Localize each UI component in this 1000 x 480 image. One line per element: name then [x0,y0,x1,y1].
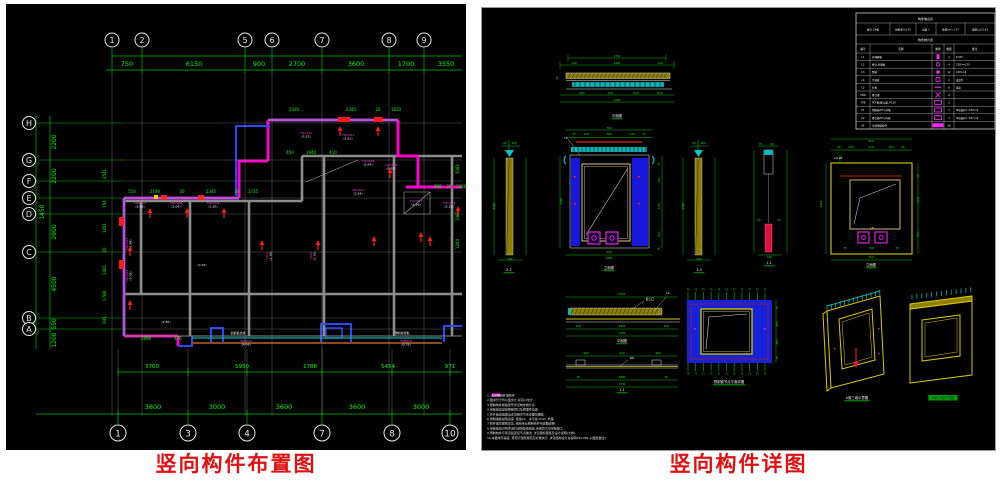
detail-section-1-1 [754,146,787,255]
svg-text:面积(㎡) 5.61: 面积(㎡) 5.61 [972,28,988,32]
svg-text:2838: 2838 [456,184,466,189]
svg-text:预制率(%) 25: 预制率(%) 25 [895,28,911,32]
svg-text:165: 165 [889,145,894,149]
svg-text:1450: 1450 [39,204,46,219]
svg-text:2898: 2898 [141,336,152,341]
svg-text:450: 450 [286,150,294,155]
svg-text:900: 900 [253,60,265,68]
svg-text:H: H [26,119,32,128]
svg-text:层数 1: 层数 1 [922,28,930,32]
svg-text:F1: F1 [861,108,864,112]
svg-text:140: 140 [572,61,577,65]
svg-text:510: 510 [128,189,136,194]
svg-text:200: 200 [701,141,706,145]
detail-section-3-3 [683,140,715,260]
svg-text:L4: L4 [862,78,865,82]
svg-text:2340: 2340 [346,107,357,112]
svg-text:210: 210 [869,145,874,149]
svg-text:(4.94): (4.94) [241,343,250,347]
svg-text:8: 8 [386,36,391,45]
svg-text:4: 4 [948,63,950,67]
svg-text:(1.81): (1.81) [343,137,352,141]
svg-text:360: 360 [607,132,612,136]
svg-text:6: 6 [948,85,950,89]
svg-text:L5: L5 [564,136,568,140]
svg-text:编号: 编号 [860,47,866,51]
svg-text:构件统计表: 构件统计表 [918,37,933,42]
svg-text:820: 820 [657,231,661,236]
svg-text:L3: L3 [862,70,865,74]
svg-text:75: 75 [756,289,759,292]
svg-text:900: 900 [584,351,589,355]
svg-text:75: 75 [843,246,847,250]
svg-text:2: 2 [948,78,950,82]
svg-text:6.预制墙板拼缝宽度, 竖缝20、水平缝-0mm 处理.: 6.预制墙板拼缝宽度, 竖缝20、水平缝-0mm 处理. [487,416,554,421]
svg-text:构件信息表: 构件信息表 [918,16,933,21]
svg-text:740: 740 [869,246,874,250]
svg-text:450: 450 [775,321,779,326]
svg-text:3550: 3550 [438,60,455,68]
svg-text:75: 75 [710,373,713,376]
svg-text:820: 820 [916,231,920,236]
svg-text:3.预制构件规格型号详见构件统计表.: 3.预制构件规格型号详见构件统计表. [487,402,536,407]
svg-text:2541: 2541 [102,168,107,179]
svg-text:20: 20 [102,247,107,253]
svg-text:85: 85 [901,145,905,149]
svg-text:75: 75 [572,132,576,136]
svg-text:L5: L5 [862,85,865,89]
svg-text:560: 560 [657,177,661,182]
svg-text:560: 560 [775,339,779,344]
svg-text:3000: 3000 [209,403,226,411]
right-drawing-title: 竖向构件详图 [481,449,996,479]
svg-text:(1.98): (1.98) [129,239,133,248]
svg-text:名称: 名称 [898,47,904,51]
svg-text:2580: 2580 [619,375,626,379]
svg-text:预制拉缝板: 预制拉缝板 [394,330,409,335]
svg-text:(0.79): (0.79) [401,343,410,347]
svg-text:2.图中尺寸均以毫米计,标高以米计.: 2.图中尺寸均以毫米计,标高以米计. [487,397,534,402]
svg-text:900: 900 [656,351,661,355]
svg-text:1200: 1200 [51,332,58,347]
svg-text:90: 90 [555,76,559,80]
svg-text:1451: 1451 [102,222,107,233]
svg-text:910: 910 [869,139,874,143]
svg-text:(1.49): (1.49) [135,205,144,209]
general-notes: 1. 表示预制外墙构件.2.图中尺寸均以毫米计,标高以米计.3.预制构件规格型号… [487,393,607,440]
svg-text:75: 75 [576,375,580,379]
svg-text:6150: 6150 [186,60,203,68]
svg-text:85: 85 [837,145,841,149]
svg-text:2730: 2730 [619,292,626,296]
svg-text:G: G [26,156,32,165]
svg-text:75: 75 [775,306,779,310]
svg-text:1-1: 1-1 [766,261,772,265]
svg-text:单块面积= 4.02 m2: 单块面积= 4.02 m2 [956,108,979,112]
svg-text:75: 75 [710,289,713,292]
svg-text:(0.54): (0.54) [363,163,372,167]
svg-text:910: 910 [869,255,874,259]
svg-text:3: 3 [185,430,191,440]
svg-text:410: 410 [329,150,337,155]
svg-text:b=63: b=63 [956,56,963,59]
svg-text:10.本图未尽事宜, 按现行国家规范及标准执行, 详见结: 10.本图未尽事宜, 按现行国家规范及标准执行, 详见结构设计总说明15G365… [487,435,607,440]
svg-text:75: 75 [748,373,751,376]
svg-text:2730: 2730 [619,382,626,386]
svg-text:200: 200 [512,141,517,145]
svg-text:1060: 1060 [606,256,613,260]
svg-text:A: A [26,325,32,334]
svg-text:75: 75 [733,289,736,292]
svg-text:YTB: YTB [861,101,866,105]
svg-text:3600: 3600 [276,403,293,411]
svg-text:C30 L=6: C30 L=6 [956,71,967,74]
svg-text:75: 75 [657,247,661,251]
svg-text:叠合,外墙板: 叠合,外墙板 [872,63,886,67]
svg-text:平面图: 平面图 [612,113,623,118]
svg-text:1-1: 1-1 [619,388,625,392]
svg-text:5: 5 [242,36,247,45]
svg-text:1240: 1240 [657,202,661,209]
svg-text:75: 75 [764,289,767,292]
svg-text:20: 20 [234,189,240,194]
svg-text:A窗三维示意图: A窗三维示意图 [846,395,869,400]
svg-text:E: E [26,194,31,203]
svg-text:75: 75 [741,289,744,292]
svg-text:8.吊装前应对构件进行进场检查验收,合格后方可吊装施工.: 8.吊装前应对构件进行进场检查验收,合格后方可吊装施工. [487,425,564,430]
svg-text:140: 140 [630,132,635,136]
svg-text:9.预制构件与现浇段连接节点做法, 详见国标图集及设计说明: 9.预制构件与现浇段连接节点做法, 详见国标图集及设计说明(大样). [487,430,576,435]
svg-text:90: 90 [770,142,774,146]
svg-text:754: 754 [102,200,107,208]
svg-text:3600: 3600 [349,403,366,411]
svg-text:750: 750 [121,60,133,68]
svg-text:8: 8 [948,93,950,97]
svg-text:(1.30): (1.30) [208,205,217,209]
svg-text:75: 75 [748,289,751,292]
svg-text:1940: 1940 [306,150,317,155]
detail-sheet-canvas: 构件信息表楼号 1#楼预制率(%) 25层数 1体积(m³) 2.37面积(㎡)… [481,7,996,451]
svg-text:1700: 1700 [398,60,415,68]
svg-text:2: 2 [139,36,144,45]
svg-text:1: 1 [948,116,950,120]
svg-text:4.吊装前应复核预留洞口及预埋件位置.: 4.吊装前应复核预留洞口及预埋件位置. [487,407,539,412]
svg-text:3700: 3700 [145,364,159,370]
detail-plan-joint [566,297,680,336]
svg-text:2430: 2430 [289,107,300,112]
svg-text:2-2: 2-2 [506,268,512,272]
svg-text:2190: 2190 [150,189,161,194]
svg-text:941: 941 [102,316,107,324]
svg-text:PCF板/叠合梁L=120: PCF板/叠合梁L=120 [872,101,896,105]
svg-text:3000: 3000 [413,403,430,411]
detail-sheet-drawing: 构件信息表楼号 1#楼预制率(%) 25层数 1体积(m³) 2.37面积(㎡)… [482,8,995,450]
svg-text:930: 930 [620,351,625,355]
svg-text:140: 140 [584,132,589,136]
svg-text:971: 971 [445,364,456,370]
svg-text:75: 75 [764,373,767,376]
svg-text:飘窗: 飘窗 [872,70,878,74]
svg-text:2730: 2730 [619,331,626,335]
svg-text:1240: 1240 [916,196,920,203]
svg-text:2450: 2450 [619,324,626,328]
svg-text:4500: 4500 [51,276,58,291]
svg-text:26: 26 [947,123,951,127]
svg-text:75: 75 [725,289,728,292]
svg-text:8: 8 [389,430,395,440]
svg-text:75: 75 [657,162,661,166]
svg-text:窗上口: 窗上口 [646,297,655,301]
svg-text:470: 470 [174,336,182,341]
svg-text:1: 1 [115,430,121,440]
svg-text:2980: 2980 [559,197,563,204]
svg-text:75: 75 [702,373,705,376]
svg-text:F2: F2 [861,116,864,120]
generated-left: 125678975061509002700360017003550HGFEDCB… [23,33,467,441]
svg-text:75: 75 [694,373,697,376]
svg-text:75: 75 [717,289,720,292]
svg-text:165: 165 [849,145,854,149]
svg-text:D8: D8 [630,356,634,360]
svg-text:(1.30): (1.30) [313,251,317,260]
svg-text:75: 75 [702,289,705,292]
svg-text:988: 988 [434,184,442,189]
concrete-walls [124,156,462,336]
svg-text:外墙模板: 外墙模板 [872,55,883,59]
svg-text:60: 60 [692,141,696,145]
svg-text:体积(m³) 2.37: 体积(m³) 2.37 [942,28,959,32]
svg-text:(2.86): (2.86) [161,320,170,324]
svg-text:C: C [26,248,32,257]
svg-text:L5: L5 [870,226,874,230]
svg-text:3600: 3600 [145,403,162,411]
svg-text:75: 75 [725,373,728,376]
svg-text:7: 7 [319,36,324,45]
svg-text:75: 75 [717,373,720,376]
svg-text:740: 740 [608,91,613,95]
svg-text:75: 75 [895,246,899,250]
layout-plan-drawing: 125678975061509002700360017003550HGFEDCB… [6,4,466,450]
svg-text:60: 60 [503,141,507,145]
svg-text:单块面积= 3.07 m2: 单块面积= 3.07 m2 [956,116,979,120]
svg-text:1620: 1620 [391,107,402,112]
svg-text:2200: 2200 [51,134,58,149]
svg-text:75: 75 [741,373,744,376]
detail-elevation-blue [560,130,662,255]
detail-axon-window-a [823,291,884,391]
detail-axon-window-b [910,296,972,383]
svg-text:140: 140 [576,324,581,328]
svg-text:760: 760 [607,126,612,130]
svg-text:(2.54): (2.54) [353,192,362,196]
svg-text:1. 表示预制外墙构件.: 1. 表示预制外墙构件. [487,393,516,398]
svg-text:L2: L2 [862,63,865,67]
svg-text:140: 140 [767,255,772,259]
svg-text:L1: L1 [862,55,865,59]
svg-text:3600: 3600 [348,60,365,68]
svg-text:20: 20 [179,189,185,194]
svg-text:平面图: 平面图 [617,338,628,343]
svg-text:940: 940 [607,250,612,254]
svg-text:20: 20 [375,107,381,112]
svg-text:2: 2 [948,55,950,59]
svg-text:9: 9 [421,36,426,45]
svg-text:75: 75 [642,132,646,136]
svg-text:图例: 图例 [935,47,941,51]
svg-text:2900: 2900 [51,224,58,239]
svg-text:1788: 1788 [102,290,107,301]
left-drawing-title: 竖向构件布置图 [6,449,466,479]
svg-text:(0.92): (0.92) [386,167,395,171]
svg-text:预制板(PC),外墙: 预制板(PC),外墙 [872,108,891,112]
svg-text:75: 75 [733,373,736,376]
svg-text:B: B [26,314,32,323]
svg-text:叠合墙: 叠合墙 [872,93,880,97]
svg-text:75: 75 [756,373,759,376]
svg-text:立面图: 立面图 [604,265,615,270]
svg-text:成品: 成品 [956,85,961,89]
svg-text:75: 75 [758,142,762,146]
svg-text:(3.37): (3.37) [301,135,310,139]
svg-text:2450: 2450 [614,61,621,65]
svg-text:1481: 1481 [102,264,107,275]
svg-text:2730: 2730 [614,54,621,58]
svg-text:1: 1 [109,36,114,45]
svg-text:备注: 备注 [972,47,978,51]
svg-text:200: 200 [508,257,513,261]
svg-text:(0.36): (0.36) [197,263,206,267]
svg-text:7.构件编号规则详见, 结构专业预制构件布置图说明.: 7.构件编号规则详见, 结构专业预制构件布置图说明. [487,421,556,426]
svg-text:预制窗节点平面详图: 预制窗节点平面详图 [714,379,745,384]
page: 125678975061509002700360017003550HGFEDCB… [0,0,1000,480]
svg-text:5950: 5950 [235,364,249,370]
svg-text:楼号 1#楼: 楼号 1#楼 [867,28,879,32]
svg-text:D: D [26,210,32,219]
svg-text:2700: 2700 [289,60,306,68]
svg-text:810: 810 [658,91,663,95]
svg-text:(1.30): (1.30) [269,251,273,260]
svg-text:25: 25 [777,218,781,222]
svg-text:1735: 1735 [248,189,259,194]
svg-text:75: 75 [916,174,920,178]
svg-text:栏板: 栏板 [872,85,878,89]
svg-text:75: 75 [687,373,690,376]
svg-text:YWQ: YWQ [860,93,866,97]
svg-text:60: 60 [757,218,761,222]
svg-text:(2.15): (2.15) [444,205,453,209]
detail-window-plan-blue [687,300,776,363]
svg-text:5454: 5454 [381,364,395,370]
svg-text:1264: 1264 [455,238,460,249]
svg-text:12: 12 [947,70,951,74]
svg-text:2980: 2980 [492,202,496,209]
svg-text:(1.04): (1.04) [171,205,180,209]
svg-text:75: 75 [687,289,690,292]
svg-text:全部预制构件: 全部预制构件 [872,123,888,127]
svg-text:3081: 3081 [455,163,460,174]
detail-section-2-2 [494,140,526,260]
svg-text:75: 75 [775,356,779,360]
svg-text:C30 b=120: C30 b=120 [956,64,970,67]
svg-text:2345: 2345 [206,189,217,194]
svg-text:1: 1 [948,108,950,112]
svg-text:叠合板(PC),内板: 叠合板(PC),内板 [872,116,891,120]
svg-text:75: 75 [664,375,668,379]
svg-text:550: 550 [51,318,58,330]
generated-right: 构件信息表楼号 1#楼预制率(%) 25层数 1体积(m³) 2.37面积(㎡)… [487,13,995,440]
svg-text:空调板: 空调板 [872,78,880,82]
svg-text:+0.05: +0.05 [834,156,843,160]
svg-text:6: 6 [269,36,274,45]
svg-text:140: 140 [664,324,669,328]
svg-text:数量: 数量 [946,47,952,51]
svg-text:200: 200 [697,257,702,261]
svg-text:75: 75 [694,289,697,292]
svg-text:2: 2 [948,101,950,105]
svg-text:B窗三维示意图: B窗三维示意图 [932,395,955,400]
svg-text:AF: AF [861,123,865,127]
svg-text:620: 620 [634,91,639,95]
svg-text:2980: 2980 [681,202,685,209]
svg-text:10: 10 [444,430,456,440]
svg-text:7: 7 [319,430,325,440]
svg-text:560: 560 [580,91,585,95]
svg-text:立面图: 立面图 [866,262,877,267]
svg-text:(1.29): (1.29) [411,203,420,207]
svg-text:L2: L2 [666,291,670,295]
svg-text:(0.78): (0.78) [129,271,133,280]
layout-plan-canvas: 125678975061509002700360017003550HGFEDCB… [6,4,466,450]
svg-text:2200: 2200 [51,168,58,183]
svg-text:成品件: 成品件 [956,78,964,82]
svg-text:铝模板拉缝: 铝模板拉缝 [230,330,245,335]
svg-text:2980: 2980 [819,200,823,207]
svg-text:F: F [27,177,32,186]
svg-text:1788: 1788 [303,364,317,370]
svg-text:2730: 2730 [614,98,621,102]
svg-text:4: 4 [244,430,250,440]
svg-text:140: 140 [658,61,663,65]
svg-text:20: 20 [446,184,452,189]
svg-text:3-3: 3-3 [696,268,702,272]
svg-text:5.外叶板接缝做法详见相关节点详图及图集.: 5.外叶板接缝做法详见相关节点详图及图集. [487,411,545,416]
